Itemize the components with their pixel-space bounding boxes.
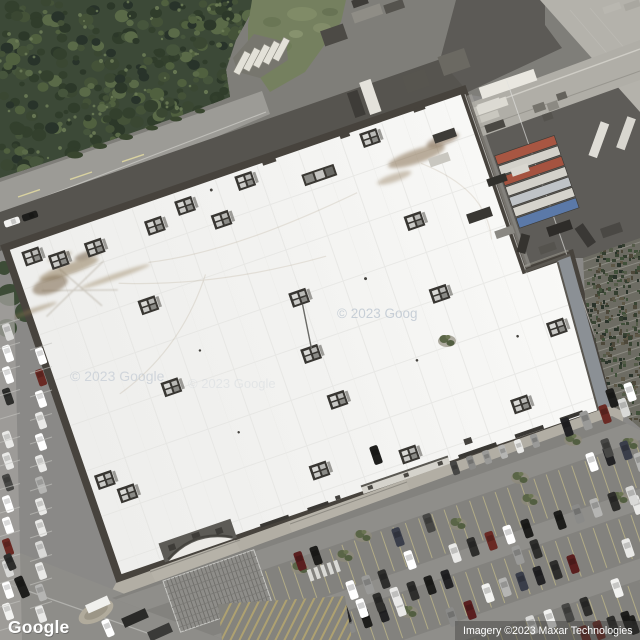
svg-text:© 2023 Goog: © 2023 Goog xyxy=(337,306,418,321)
svg-text:Google: Google xyxy=(8,617,70,637)
svg-text:© 2023 Google: © 2023 Google xyxy=(70,368,165,384)
svg-text:© 2023 Google: © 2023 Google xyxy=(188,376,276,391)
svg-text:Imagery ©2023 Maxar Technologi: Imagery ©2023 Maxar Technologies xyxy=(463,625,633,637)
